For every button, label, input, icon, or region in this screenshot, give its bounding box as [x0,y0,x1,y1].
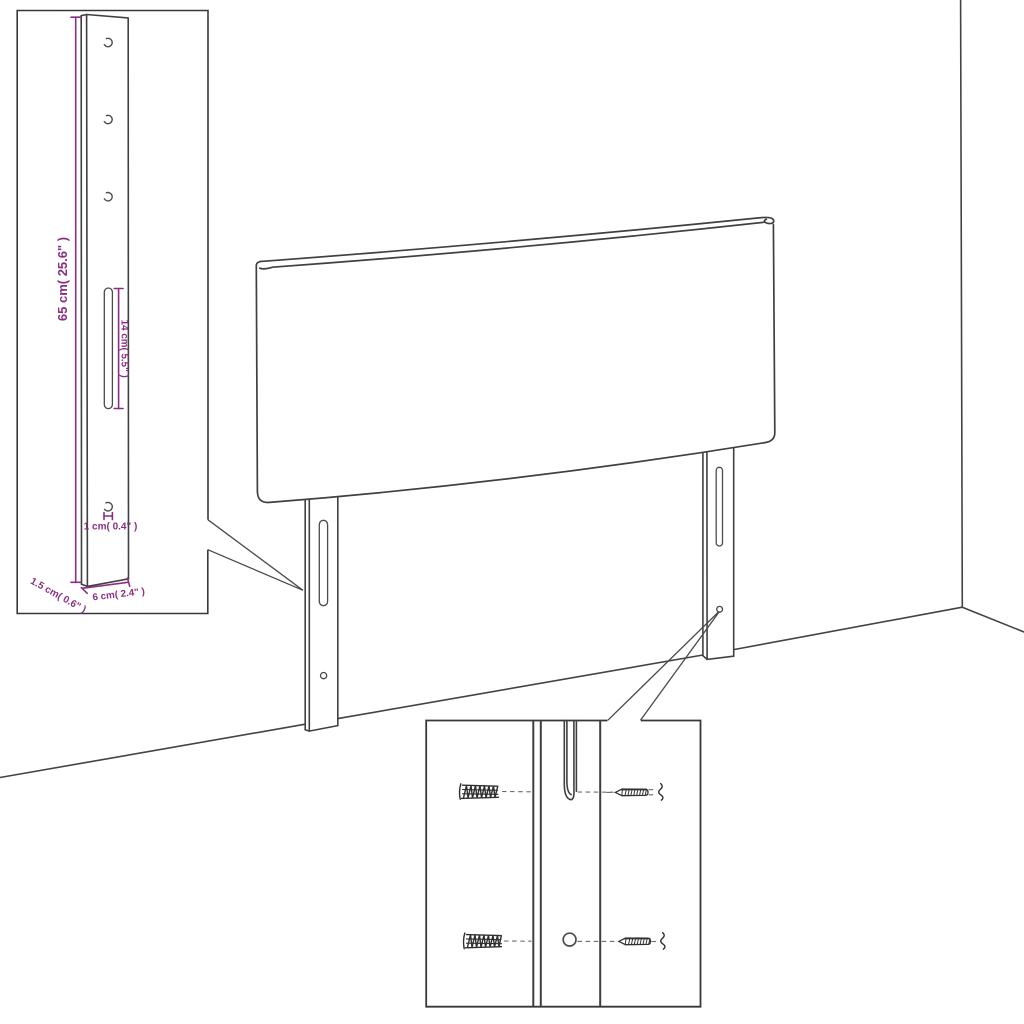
svg-text:14 cm( 5.5" ): 14 cm( 5.5" ) [118,320,129,378]
svg-text:1 cm( 0.4" ): 1 cm( 0.4" ) [84,521,138,532]
svg-text:65 cm( 25.6" ): 65 cm( 25.6" ) [55,237,70,321]
